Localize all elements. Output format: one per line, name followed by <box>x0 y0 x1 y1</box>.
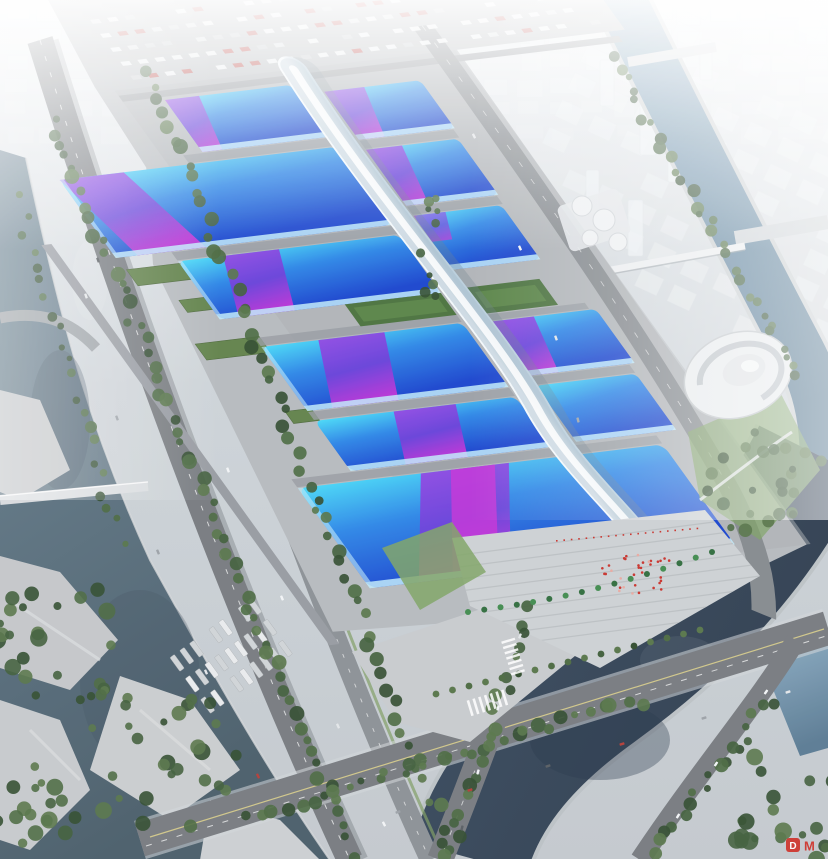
aerial-city-rendering: D M <box>0 0 828 859</box>
global-haze-veil <box>0 0 828 859</box>
watermark-letter: D <box>789 841 796 852</box>
aerial-rendering-stage: D M <box>0 0 828 859</box>
watermark-text: M <box>804 839 815 854</box>
